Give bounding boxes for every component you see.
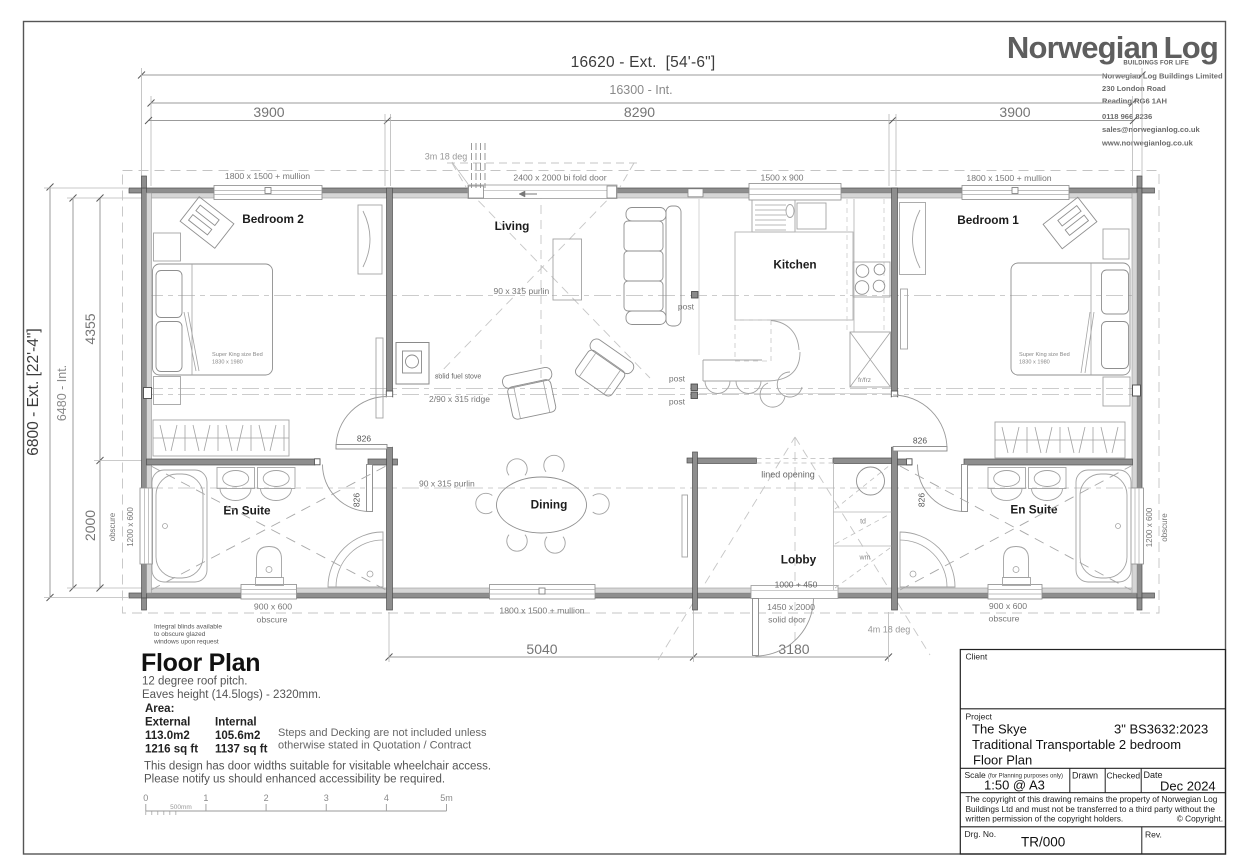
svg-text:1: 1 xyxy=(203,793,208,803)
svg-text:Eaves height (14.5logs) - 2320: Eaves height (14.5logs) - 2320mm. xyxy=(142,689,321,701)
svg-text:4m 18 deg: 4m 18 deg xyxy=(868,625,911,635)
svg-text:obscure: obscure xyxy=(989,614,1020,624)
svg-text:826: 826 xyxy=(357,434,371,444)
svg-text:2: 2 xyxy=(264,793,269,803)
svg-text:900 x 600: 900 x 600 xyxy=(254,602,292,612)
svg-text:Bedroom 1: Bedroom 1 xyxy=(957,213,1019,227)
svg-text:This design has door widths su: This design has door widths suitable for… xyxy=(144,761,491,773)
svg-text:Project: Project xyxy=(966,712,993,722)
svg-text:16300 - Int.: 16300 - Int. xyxy=(609,83,672,97)
svg-text:3900: 3900 xyxy=(999,104,1030,120)
svg-text:obscure: obscure xyxy=(1160,513,1169,542)
svg-text:1216 sq ft: 1216 sq ft xyxy=(145,744,198,756)
svg-text:Lobby: Lobby xyxy=(781,553,817,567)
svg-text:90 x 315 purlin: 90 x 315 purlin xyxy=(494,286,550,296)
svg-text:90 x 315 purlin: 90 x 315 purlin xyxy=(419,479,475,489)
svg-text:The Skye: The Skye xyxy=(972,722,1027,737)
svg-text:900 x 600: 900 x 600 xyxy=(989,601,1027,611)
svg-text:Super King size Bed: Super King size Bed xyxy=(212,352,263,358)
svg-text:wm: wm xyxy=(859,555,871,562)
svg-text:113.0m2: 113.0m2 xyxy=(145,730,190,742)
svg-text:3900: 3900 xyxy=(253,104,284,120)
svg-text:post: post xyxy=(678,302,695,312)
svg-text:Kitchen: Kitchen xyxy=(773,258,816,272)
svg-text:1800 x 1500 + mullion: 1800 x 1500 + mullion xyxy=(499,606,584,616)
svg-text:solid door: solid door xyxy=(768,615,806,625)
svg-text:2000: 2000 xyxy=(82,510,98,541)
svg-text:windows upon request: windows upon request xyxy=(153,639,219,646)
svg-text:The copyright of this drawing: The copyright of this drawing remains th… xyxy=(966,794,1218,804)
svg-text:lined opening: lined opening xyxy=(761,470,815,480)
svg-text:otherwise stated in Quotation: otherwise stated in Quotation / Contract xyxy=(278,740,471,752)
svg-text:fr/frz: fr/frz xyxy=(858,377,871,384)
svg-text:td: td xyxy=(860,519,866,526)
svg-text:1830 x 1980: 1830 x 1980 xyxy=(212,360,243,366)
svg-text:Bedroom 2: Bedroom 2 xyxy=(242,212,304,226)
svg-text:solid fuel stove: solid fuel stove xyxy=(435,374,481,381)
svg-text:5m: 5m xyxy=(440,793,453,803)
svg-text:8290: 8290 xyxy=(624,104,655,120)
svg-text:1200 x 600: 1200 x 600 xyxy=(126,507,135,547)
svg-text:Steps and Decking are not incl: Steps and Decking are not included unles… xyxy=(278,727,487,739)
svg-text:4: 4 xyxy=(384,793,389,803)
svg-text:500mm: 500mm xyxy=(170,804,192,811)
svg-text:105.6m2: 105.6m2 xyxy=(215,730,260,742)
svg-text:Buildings Ltd and must not be: Buildings Ltd and must not be transferre… xyxy=(966,804,1216,814)
svg-text:826: 826 xyxy=(913,436,927,446)
svg-text:5040: 5040 xyxy=(526,641,557,657)
svg-text:written permission of the copy: written permission of the copyright hold… xyxy=(965,814,1124,824)
svg-text:1000 + 450: 1000 + 450 xyxy=(775,580,818,590)
svg-text:2400 x 2000 bi fold door: 2400 x 2000 bi fold door xyxy=(513,173,606,183)
svg-text:2/90 x 315 ridge: 2/90 x 315 ridge xyxy=(429,394,490,404)
svg-text:230 London Road: 230 London Road xyxy=(1102,84,1166,93)
svg-text:826: 826 xyxy=(352,493,362,507)
svg-text:826: 826 xyxy=(917,493,927,507)
svg-text:En Suite: En Suite xyxy=(223,504,271,518)
svg-text:External: External xyxy=(145,717,190,729)
svg-text:Floor Plan: Floor Plan xyxy=(973,753,1032,768)
svg-text:Client: Client xyxy=(966,652,988,662)
svg-text:Checked: Checked xyxy=(1107,771,1141,781)
svg-text:BUILDINGS FOR LIFE: BUILDINGS FOR LIFE xyxy=(1123,61,1189,67)
svg-text:4355: 4355 xyxy=(82,313,98,344)
svg-text:Floor Plan: Floor Plan xyxy=(141,649,260,677)
svg-text:1200 x 600: 1200 x 600 xyxy=(1145,507,1154,547)
svg-text:Living: Living xyxy=(495,219,530,233)
svg-text:12 degree roof pitch.: 12 degree roof pitch. xyxy=(142,676,248,688)
svg-text:1500 x 900: 1500 x 900 xyxy=(761,173,804,183)
svg-text:Traditional Transportable 2 be: Traditional Transportable 2 bedroom xyxy=(972,737,1181,752)
svg-text:16620 - Ext. [54'-6"]: 16620 - Ext. [54'-6"] xyxy=(571,54,716,71)
svg-text:1800 x 1500 + mullion: 1800 x 1500 + mullion xyxy=(225,171,310,181)
svg-text:Rev.: Rev. xyxy=(1145,830,1162,840)
svg-text:1830 x 1980: 1830 x 1980 xyxy=(1019,360,1050,366)
svg-text:post: post xyxy=(669,374,686,384)
svg-text:Integral blinds available: Integral blinds available xyxy=(154,624,222,631)
svg-text:post: post xyxy=(669,397,686,407)
svg-text:obscure: obscure xyxy=(108,512,117,541)
svg-text:3: 3 xyxy=(324,793,329,803)
svg-text:Drg. No.: Drg. No. xyxy=(965,829,997,839)
svg-text:obscure: obscure xyxy=(257,615,288,625)
svg-text:1:50 @ A3: 1:50 @ A3 xyxy=(984,778,1045,793)
svg-text:Dining: Dining xyxy=(531,498,568,512)
svg-text:Super King size Bed: Super King size Bed xyxy=(1019,352,1070,358)
svg-text:1450 x 2000: 1450 x 2000 xyxy=(767,602,815,612)
svg-text:Please notify us should enhanc: Please notify us should enhanced accessi… xyxy=(144,774,445,786)
svg-text:6800 - Ext. [22'-4"]: 6800 - Ext. [22'-4"] xyxy=(25,328,42,455)
svg-text:6480 - Int.: 6480 - Int. xyxy=(55,365,69,421)
svg-text:to obscure glazed: to obscure glazed xyxy=(154,631,206,638)
svg-text:www.norwegianlog.co.uk: www.norwegianlog.co.uk xyxy=(1101,139,1194,148)
svg-text:1800 x 1500 + mullion: 1800 x 1500 + mullion xyxy=(966,173,1051,183)
svg-text:Norwegian Log Buildings Limite: Norwegian Log Buildings Limited xyxy=(1102,72,1223,81)
svg-text:TR/000: TR/000 xyxy=(1021,835,1065,850)
svg-text:sales@norwegianlog.co.uk: sales@norwegianlog.co.uk xyxy=(1102,125,1200,134)
svg-text:1137 sq ft: 1137 sq ft xyxy=(215,744,268,756)
svg-text:Area:: Area: xyxy=(145,703,174,715)
svg-text:3" BS3632:2023: 3" BS3632:2023 xyxy=(1114,722,1208,737)
svg-text:Scale: Scale xyxy=(965,770,987,780)
svg-text:0: 0 xyxy=(143,793,148,803)
svg-text:3m 18 deg: 3m 18 deg xyxy=(425,152,468,162)
svg-text:0118 966 8236: 0118 966 8236 xyxy=(1102,112,1152,121)
svg-text:Dec 2024: Dec 2024 xyxy=(1160,779,1216,794)
svg-text:Drawn: Drawn xyxy=(1072,771,1098,781)
svg-text:Internal: Internal xyxy=(215,717,257,729)
svg-text:© Copyright.: © Copyright. xyxy=(1177,814,1223,824)
